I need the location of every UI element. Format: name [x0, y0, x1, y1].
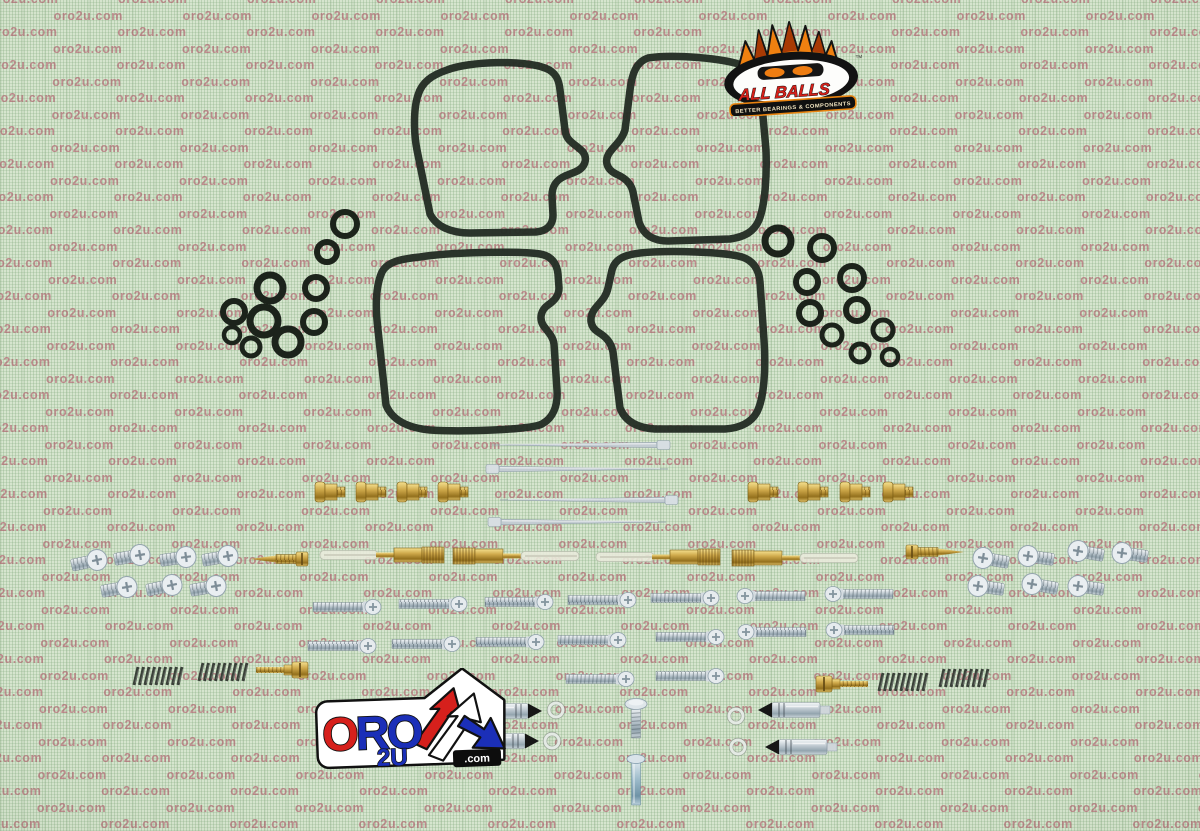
oro2u-suffix: .com [464, 753, 490, 766]
vertical-screw-long [627, 755, 645, 806]
spring [879, 673, 928, 691]
machine-screw [313, 600, 381, 615]
machine-screw [825, 587, 893, 602]
spring [940, 669, 989, 687]
machine-screw [399, 597, 467, 612]
all-balls-logo: ALL BALLS TM BETTER BEARINGS & COMPONENT… [706, 18, 876, 116]
o-ring [257, 275, 283, 301]
brass-main-jet [883, 482, 913, 502]
o-ring [799, 302, 821, 324]
needle-jet-emulsion-tube [596, 549, 720, 565]
spring [134, 667, 183, 685]
needle-jet-emulsion-tube [732, 550, 858, 566]
pan-head-screw [100, 575, 139, 602]
washer [727, 707, 745, 725]
bowl-gasket [591, 252, 765, 429]
pan-head-screw [1111, 541, 1150, 567]
needle-jet-emulsion-tube [320, 547, 444, 563]
brass-pilot-screw [906, 545, 964, 559]
float-needle-valve [758, 703, 830, 718]
washer [729, 738, 747, 756]
o-ring [882, 349, 898, 365]
brass-adjuster-screw [256, 662, 308, 678]
pan-head-screw [1020, 572, 1059, 599]
brass-main-jet [438, 482, 468, 502]
machine-screw [485, 595, 553, 610]
o-ring [765, 228, 791, 254]
o-ring [822, 325, 842, 345]
brass-main-jet [748, 482, 778, 502]
o-ring [846, 299, 868, 321]
jet-needle [486, 465, 668, 474]
brass-main-jet [798, 482, 828, 502]
machine-screw [558, 633, 626, 648]
o-ring [275, 329, 301, 355]
o-ring [840, 266, 864, 290]
machine-screw [656, 630, 724, 645]
o-ring [242, 338, 260, 356]
pan-head-screw [1067, 574, 1106, 600]
machine-screw [476, 635, 544, 650]
pan-head-screw [189, 574, 228, 601]
spring [199, 663, 248, 681]
brass-adjuster-screw [816, 676, 868, 692]
machine-screw [656, 669, 724, 684]
washer [547, 701, 565, 719]
pan-head-screw [201, 544, 240, 571]
o-ring [796, 271, 818, 293]
machine-screw [826, 623, 894, 638]
brass-main-jet [840, 482, 870, 502]
photo-carb-rebuild-kit: oro2u.comoro2u.comoro2u.comoro2u.comoro2… [0, 0, 1200, 831]
machine-screw [737, 589, 805, 604]
o-ring [810, 236, 834, 260]
o-ring [223, 301, 245, 323]
o-ring [305, 277, 327, 299]
machine-screw [566, 672, 634, 687]
brass-main-jet [315, 482, 345, 502]
pan-head-screw [113, 543, 152, 570]
brass-main-jet [356, 482, 386, 502]
machine-screw [568, 593, 636, 608]
bowl-gasket [415, 63, 586, 233]
o-ring [224, 327, 240, 343]
o-ring [303, 311, 325, 333]
needle-jet-emulsion-tube [453, 548, 579, 564]
pan-head-screw [159, 545, 198, 571]
brass-pilot-screw [250, 552, 308, 566]
pan-head-screw [69, 548, 109, 576]
o-ring [250, 307, 278, 335]
o-ring [851, 344, 869, 362]
jet-needle [492, 441, 670, 450]
o-ring [317, 242, 337, 262]
float-needle-valve [765, 740, 837, 755]
machine-screw [651, 591, 719, 606]
pan-head-screw [144, 573, 184, 601]
machine-screw [308, 639, 376, 654]
pan-head-screw [967, 574, 1006, 600]
pan-head-screw [1066, 539, 1105, 566]
oro2u-sub: 2U [377, 744, 409, 772]
jet-needle [488, 518, 666, 527]
bowl-gasket [376, 252, 559, 430]
pan-head-screw [971, 546, 1010, 573]
oro2u-logo: ORO 2U .com [314, 668, 510, 776]
vertical-screw-short [625, 699, 647, 739]
machine-screw [392, 637, 460, 652]
jet-needle [500, 496, 678, 505]
pan-head-screw [1017, 544, 1056, 570]
machine-screw [738, 625, 806, 640]
o-ring [333, 212, 357, 236]
brass-main-jet [397, 482, 427, 502]
kit-parts-layer [0, 0, 1200, 831]
o-ring [873, 320, 893, 340]
trademark-symbol: TM [856, 54, 863, 59]
washer [543, 732, 561, 750]
